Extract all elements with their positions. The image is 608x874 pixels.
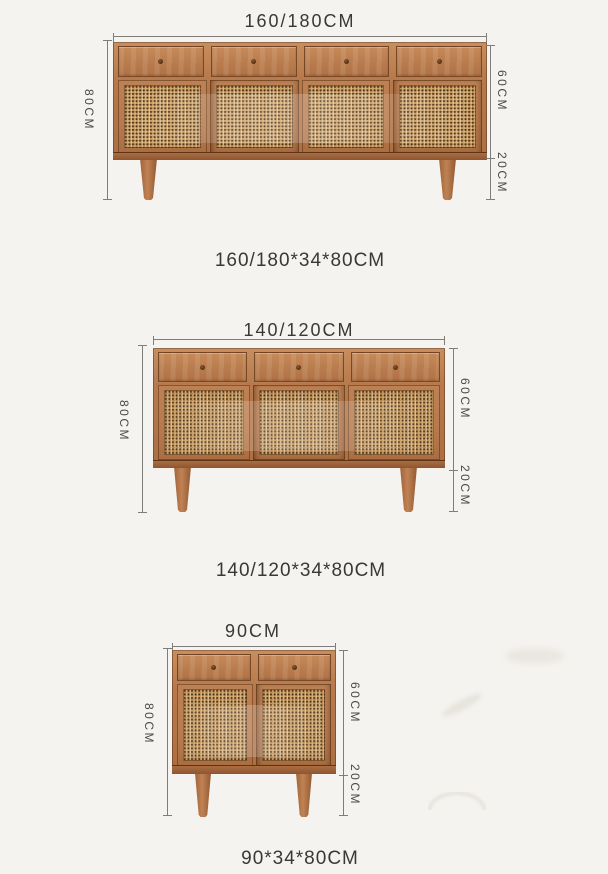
drawer-row (118, 46, 482, 77)
drawer-front (158, 352, 247, 382)
drawer-front (304, 46, 390, 77)
drawer-knob-icon (292, 665, 297, 670)
rattan-panel (259, 390, 339, 455)
width-dimension-line (153, 339, 445, 340)
height-dimension-label: 80CM (83, 89, 95, 131)
cabinet-illustration (153, 348, 445, 468)
drawer-front (254, 352, 343, 382)
drawer-row (158, 352, 440, 382)
rattan-panel (183, 689, 247, 761)
height-dimension-label: 80CM (143, 703, 155, 745)
drawer-front (258, 654, 332, 681)
right-leg (438, 160, 457, 200)
height-dimension-line (167, 648, 168, 816)
drawer-knob-icon (296, 365, 301, 370)
dimension-tick (449, 470, 458, 471)
body-height-dimension-label: 60CM (459, 378, 471, 420)
leg-height-dimension-label: 20CM (496, 152, 508, 194)
left-leg (194, 774, 212, 817)
door-row (158, 385, 440, 460)
width-dimension-label: 160/180CM (244, 11, 355, 32)
sliding-door (253, 385, 345, 460)
body-height-dimension-label: 60CM (496, 70, 508, 112)
door-row (177, 684, 331, 766)
drawer-knob-icon (344, 59, 349, 64)
door-row (118, 80, 482, 153)
sliding-door (210, 80, 299, 153)
cabinet-illustration (172, 650, 336, 774)
watermark-smudge (428, 792, 486, 832)
sliding-door (256, 684, 332, 766)
body-leg-dimension-line (453, 348, 454, 512)
rattan-panel (124, 85, 201, 148)
left-leg (173, 468, 192, 512)
width-dimension-line (113, 36, 487, 37)
sliding-door (348, 385, 440, 460)
drawer-front (396, 46, 482, 77)
height-dimension-line (107, 40, 108, 200)
size-caption: 140/120*34*80CM (216, 560, 386, 582)
watermark-smudge (506, 648, 564, 664)
size-caption: 90*34*80CM (241, 848, 359, 870)
rattan-panel (399, 85, 476, 148)
width-dimension-line (172, 646, 336, 647)
watermark-smudge (440, 690, 484, 719)
size-caption: 160/180*34*80CM (215, 250, 385, 272)
rattan-panel (262, 689, 326, 761)
base-rail (153, 460, 445, 468)
rattan-panel (164, 390, 244, 455)
drawer-front (177, 654, 251, 681)
left-leg (139, 160, 158, 200)
right-leg (399, 468, 418, 512)
base-rail (113, 152, 487, 160)
leg-height-dimension-label: 20CM (459, 465, 471, 507)
height-dimension-label: 80CM (118, 400, 130, 442)
product-dimension-sheet: 160/180CM 80CM 60CM 20CM 160/180*34*80CM… (0, 0, 608, 874)
drawer-row (177, 654, 331, 681)
drawer-knob-icon (200, 365, 205, 370)
sliding-door (393, 80, 482, 153)
dimension-tick (339, 775, 348, 776)
sliding-door (158, 385, 250, 460)
body-leg-dimension-line (490, 45, 491, 200)
sliding-door (177, 684, 253, 766)
drawer-front (351, 352, 440, 382)
width-dimension-label: 140/120CM (243, 320, 354, 341)
drawer-knob-icon (211, 665, 216, 670)
drawer-knob-icon (158, 59, 163, 64)
drawer-knob-icon (251, 59, 256, 64)
rattan-panel (308, 85, 385, 148)
drawer-front (211, 46, 297, 77)
body-leg-dimension-line (343, 650, 344, 816)
right-leg (295, 774, 313, 817)
rattan-panel (216, 85, 293, 148)
drawer-knob-icon (437, 59, 442, 64)
drawer-front (118, 46, 204, 77)
cabinet-illustration (113, 42, 487, 160)
base-rail (172, 765, 336, 774)
drawer-knob-icon (393, 365, 398, 370)
leg-height-dimension-label: 20CM (349, 764, 361, 806)
sliding-door (302, 80, 391, 153)
width-dimension-label: 90CM (225, 621, 281, 642)
height-dimension-line (142, 345, 143, 513)
sliding-door (118, 80, 207, 153)
dimension-tick (486, 158, 495, 159)
body-height-dimension-label: 60CM (349, 682, 361, 724)
rattan-panel (354, 390, 434, 455)
